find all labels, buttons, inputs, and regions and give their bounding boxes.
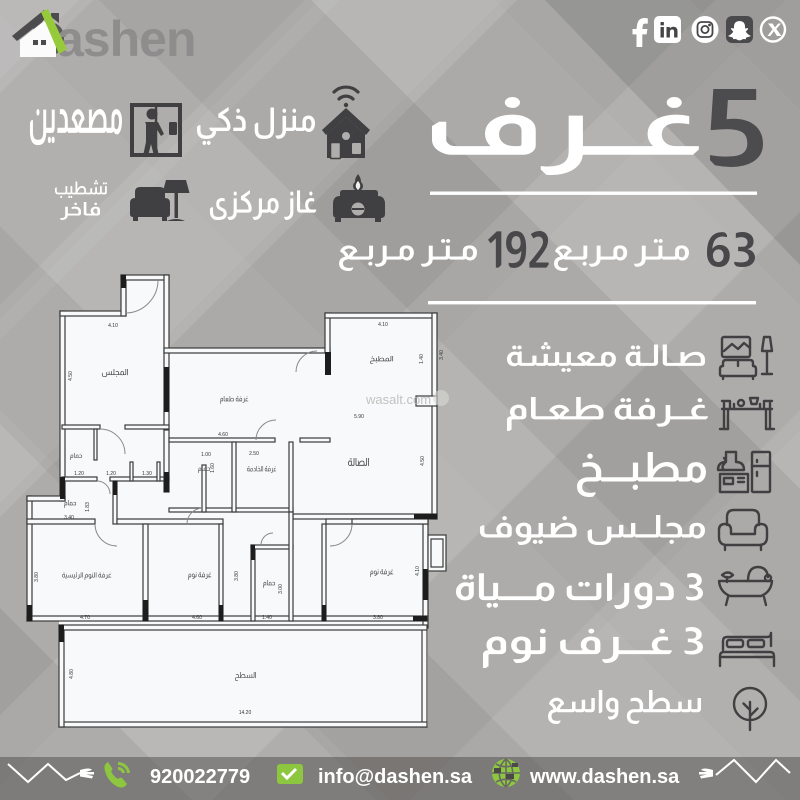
svg-text:1.20: 1.20 [74, 471, 84, 477]
svg-text:3.40: 3.40 [64, 515, 74, 521]
svg-text:3.80: 3.80 [373, 615, 383, 621]
svg-text:3.80: 3.80 [34, 572, 40, 582]
svg-text:920022779: 920022779 [150, 766, 250, 788]
svg-text:1.20: 1.20 [106, 471, 116, 477]
svg-text:wasalt.com: wasalt.com [365, 392, 431, 407]
svg-text:1.60: 1.60 [210, 463, 216, 473]
svg-text:4.10: 4.10 [415, 566, 421, 576]
svg-text:info@dashen.sa: info@dashen.sa [318, 766, 473, 788]
svg-text:4.10: 4.10 [108, 323, 118, 329]
svg-text:1.83: 1.83 [85, 502, 91, 512]
svg-text:4.60: 4.60 [192, 615, 202, 621]
svg-text:4.50: 4.50 [68, 371, 74, 381]
svg-text:3.40: 3.40 [439, 350, 445, 360]
svg-text:www.dashen.sa: www.dashen.sa [529, 766, 680, 788]
svg-text:1.30: 1.30 [142, 471, 152, 477]
svg-text:2.50: 2.50 [249, 451, 259, 457]
svg-text:1.40: 1.40 [262, 615, 272, 621]
svg-text:4.80: 4.80 [69, 669, 75, 679]
svg-text:4.70: 4.70 [80, 615, 90, 621]
svg-text:3.00: 3.00 [278, 584, 284, 594]
svg-text:4.50: 4.50 [420, 456, 426, 466]
svg-text:5.90: 5.90 [354, 414, 364, 420]
svg-text:1.40: 1.40 [419, 354, 425, 364]
svg-text:ashen: ashen [56, 11, 196, 67]
svg-text:4.10: 4.10 [378, 322, 388, 328]
svg-text:4.60: 4.60 [218, 432, 228, 438]
svg-text:14.20: 14.20 [239, 710, 252, 716]
svg-text:3.80: 3.80 [234, 571, 240, 581]
svg-text:1.00: 1.00 [201, 452, 211, 458]
